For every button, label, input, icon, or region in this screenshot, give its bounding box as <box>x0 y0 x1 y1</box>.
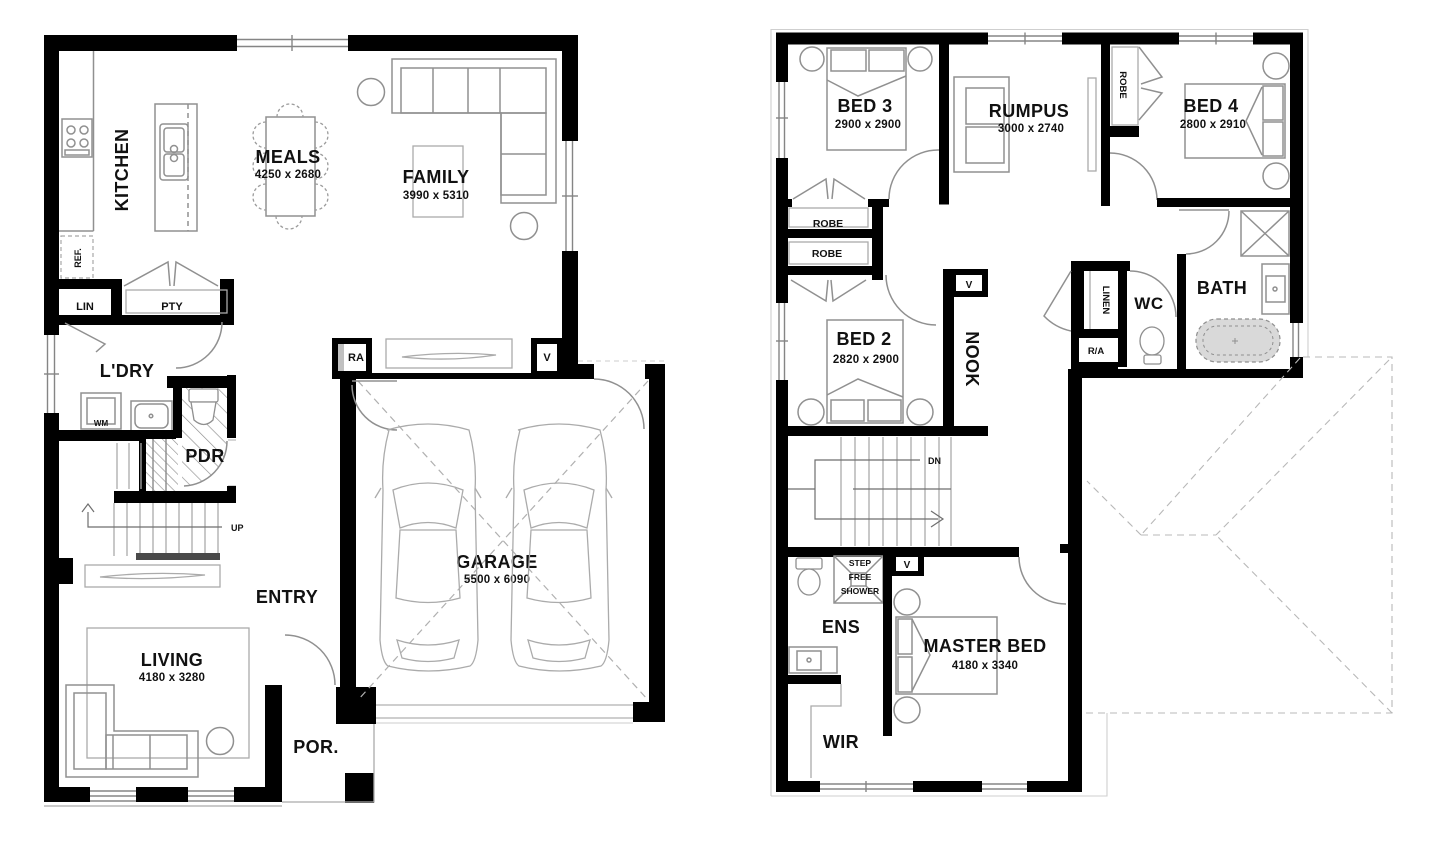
svg-text:STEP: STEP <box>849 558 872 568</box>
svg-text:RUMPUS: RUMPUS <box>989 101 1069 121</box>
svg-text:BATH: BATH <box>1197 278 1247 298</box>
svg-text:2820 x 2900: 2820 x 2900 <box>833 354 899 366</box>
svg-text:2800 x 2910: 2800 x 2910 <box>1180 119 1246 131</box>
svg-text:FREE: FREE <box>849 572 872 582</box>
svg-text:4180 x 3340: 4180 x 3340 <box>952 660 1018 672</box>
svg-text:LINEN: LINEN <box>1100 286 1111 315</box>
svg-text:V: V <box>966 280 973 291</box>
svg-text:LIVING: LIVING <box>141 650 203 670</box>
svg-text:REF.: REF. <box>73 248 83 268</box>
svg-text:ROBE: ROBE <box>1117 71 1128 98</box>
svg-text:BED 4: BED 4 <box>1183 96 1238 116</box>
svg-text:ROBE: ROBE <box>813 218 843 230</box>
svg-text:LIN: LIN <box>76 301 94 313</box>
svg-text:V: V <box>543 352 551 364</box>
svg-text:BED 3: BED 3 <box>837 96 892 116</box>
svg-text:NOOK: NOOK <box>962 331 982 387</box>
svg-text:ENTRY: ENTRY <box>256 587 318 607</box>
svg-text:4250 x 2680: 4250 x 2680 <box>255 169 321 181</box>
svg-text:3990 x 5310: 3990 x 5310 <box>403 190 469 202</box>
svg-text:BED 2: BED 2 <box>836 329 891 349</box>
svg-text:4180 x 3280: 4180 x 3280 <box>139 672 205 684</box>
svg-text:UP: UP <box>231 523 244 533</box>
svg-text:FAMILY: FAMILY <box>403 167 470 187</box>
svg-text:ROBE: ROBE <box>812 248 842 260</box>
svg-text:WC: WC <box>1134 294 1164 313</box>
svg-text:ENS: ENS <box>822 617 860 637</box>
svg-text:MEALS: MEALS <box>256 147 321 167</box>
svg-text:L'DRY: L'DRY <box>100 361 155 381</box>
svg-text:WM: WM <box>94 419 109 428</box>
svg-text:5500 x 6090: 5500 x 6090 <box>464 574 530 586</box>
svg-text:WIR: WIR <box>823 732 859 752</box>
svg-text:V: V <box>904 560 911 571</box>
svg-text:2900 x 2900: 2900 x 2900 <box>835 119 901 131</box>
svg-text:3000 x 2740: 3000 x 2740 <box>998 123 1064 135</box>
svg-text:GARAGE: GARAGE <box>456 552 537 572</box>
svg-text:MASTER BED: MASTER BED <box>923 636 1046 656</box>
svg-text:POR.: POR. <box>293 737 339 757</box>
svg-text:PDR: PDR <box>185 446 224 466</box>
svg-text:SHOWER: SHOWER <box>841 586 879 596</box>
svg-text:PTY: PTY <box>161 301 183 313</box>
svg-text:KITCHEN: KITCHEN <box>112 129 132 212</box>
svg-text:DN: DN <box>928 456 941 466</box>
svg-text:RA: RA <box>348 352 364 364</box>
svg-text:R/A: R/A <box>1088 346 1105 357</box>
